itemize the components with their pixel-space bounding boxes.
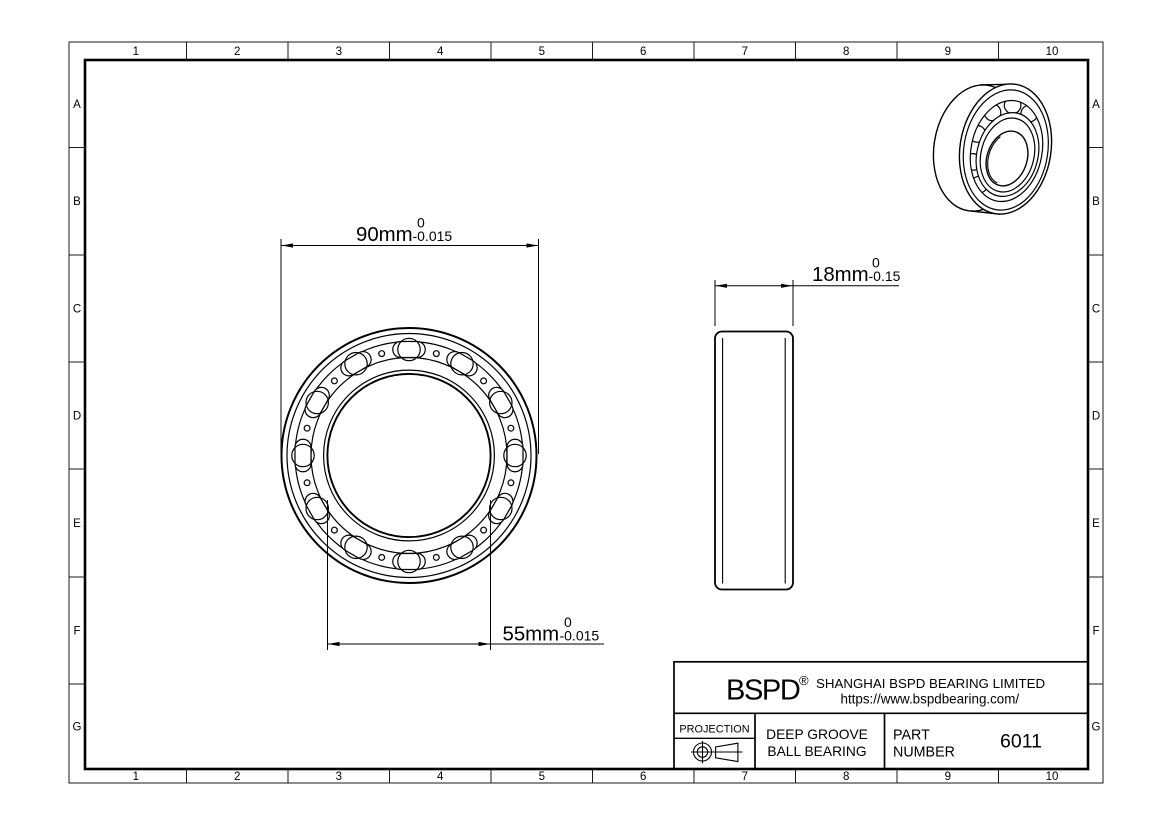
svg-text:9: 9	[945, 46, 951, 58]
svg-text:C: C	[73, 304, 81, 316]
svg-text:1: 1	[133, 771, 139, 783]
svg-text:10: 10	[1046, 46, 1059, 58]
svg-text:8: 8	[843, 771, 849, 783]
svg-text:PART: PART	[893, 728, 930, 744]
svg-text:1: 1	[133, 46, 139, 58]
svg-text:PROJECTION: PROJECTION	[679, 724, 749, 736]
svg-text:5: 5	[539, 46, 545, 58]
svg-text:90mm: 90mm	[356, 224, 413, 246]
svg-text:SHANGHAI BSPD BEARING LIMITED: SHANGHAI BSPD BEARING LIMITED	[816, 676, 1045, 691]
svg-text:6: 6	[640, 771, 646, 783]
svg-text:7: 7	[742, 771, 748, 783]
svg-text:3: 3	[336, 771, 342, 783]
svg-text:F: F	[1092, 626, 1099, 638]
svg-text:B: B	[1092, 196, 1100, 208]
svg-text:®: ®	[799, 673, 809, 688]
svg-text:https://www.bspdbearing.com/: https://www.bspdbearing.com/	[841, 692, 1020, 707]
svg-text:E: E	[1092, 518, 1100, 530]
svg-text:3: 3	[336, 46, 342, 58]
svg-text:D: D	[1092, 411, 1100, 423]
svg-text:DEEP GROOVE: DEEP GROOVE	[766, 727, 868, 742]
svg-text:F: F	[73, 626, 80, 638]
svg-text:C: C	[1092, 304, 1100, 316]
svg-text:5: 5	[539, 771, 545, 783]
svg-text:2: 2	[234, 46, 240, 58]
svg-text:0: 0	[564, 614, 572, 630]
svg-text:A: A	[73, 99, 81, 111]
svg-text:9: 9	[945, 771, 951, 783]
svg-text:18mm: 18mm	[812, 264, 869, 286]
svg-text:E: E	[73, 518, 81, 530]
svg-text:NUMBER: NUMBER	[893, 745, 955, 761]
svg-text:8: 8	[843, 46, 849, 58]
svg-text:A: A	[1092, 99, 1100, 111]
svg-text:2: 2	[234, 771, 240, 783]
svg-text:0: 0	[417, 215, 425, 231]
svg-text:6: 6	[640, 46, 646, 58]
svg-text:D: D	[73, 411, 81, 423]
svg-text:0: 0	[872, 255, 880, 271]
svg-text:4: 4	[437, 771, 444, 783]
svg-text:7: 7	[742, 46, 748, 58]
svg-text:G: G	[73, 722, 82, 734]
svg-text:G: G	[1092, 722, 1101, 734]
svg-text:B: B	[73, 196, 81, 208]
svg-text:6011: 6011	[1000, 731, 1042, 753]
svg-text:BSPD: BSPD	[726, 675, 800, 707]
svg-text:4: 4	[437, 46, 444, 58]
svg-text:55mm: 55mm	[503, 624, 560, 646]
svg-text:10: 10	[1046, 771, 1059, 783]
svg-text:BALL BEARING: BALL BEARING	[767, 744, 866, 759]
